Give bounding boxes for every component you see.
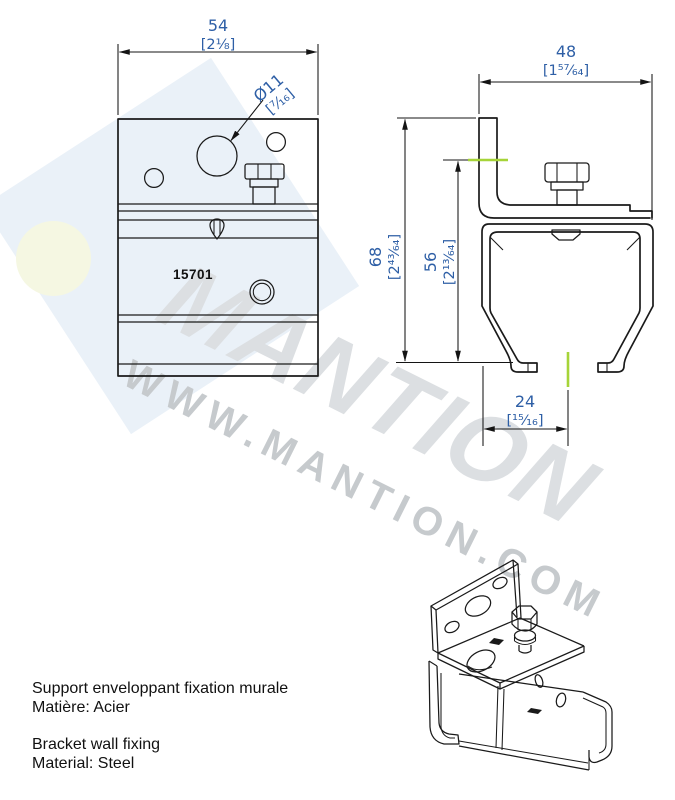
dim-body-height-in: [2¹³⁄₆₄] [442,239,458,285]
front-hole-top-right [267,133,286,152]
description-en-title: Bracket wall fixing [32,735,288,754]
dim-front-width-mm: 54 [208,16,228,35]
technical-drawing-page: MANTION WWW.MANTION.COM [0,0,675,800]
description-en-material: Material: Steel [32,754,288,773]
dim-offset-in: [¹⁵⁄₁₆] [507,413,544,429]
iso-stamp-side [527,708,542,714]
dim-front-width-in: [2⅛] [201,37,236,53]
dim-total-height-in: [2⁴³⁄₆₄] [387,234,403,280]
dim-side-width-in: [1⁵⁷⁄₆₄] [543,63,589,79]
side-view-part [479,118,653,372]
description-fr-material: Matière: Acier [32,698,288,717]
part-number-label: 15701 [173,267,213,282]
side-view-dimensions: 48 [1⁵⁷⁄₆₄] 68 [2⁴³⁄₆₄] 56 [2¹³⁄₆₄] 24 [… [366,42,652,446]
channel-corner-chamfers [490,237,640,250]
front-hole-lower-inner [253,283,270,300]
side-bolt [545,163,589,205]
iso-rail-hole [555,692,567,708]
front-bolt [245,164,284,204]
iso-plate-hole-3 [443,619,461,635]
front-hole-large [197,136,237,176]
front-hole-left [145,169,164,188]
iso-plate-hole-2 [462,592,494,621]
iso-flange-hole [463,646,498,677]
dim-total-height-mm: 68 [366,247,385,267]
front-view-part: 15701 [118,119,318,376]
side-view: 48 [1⁵⁷⁄₆₄] 68 [2⁴³⁄₆₄] 56 [2¹³⁄₆₄] 24 [… [366,42,653,446]
iso-stamp-top [489,638,504,645]
dim-offset-mm: 24 [515,392,535,411]
dim-body-height-mm: 56 [421,252,440,272]
front-view: 15701 54 [2⅛] Ø11 [⁷⁄₁₆] [118,16,318,376]
description-block: Support enveloppant fixation murale Mati… [32,679,288,773]
description-fr-title: Support enveloppant fixation murale [32,679,288,698]
iso-bolt [512,606,537,653]
front-tab [210,219,224,239]
front-view-dimensions: 54 [2⅛] Ø11 [⁷⁄₁₆] [118,16,318,141]
dim-side-width-mm: 48 [556,42,576,61]
isometric-view [429,560,612,770]
